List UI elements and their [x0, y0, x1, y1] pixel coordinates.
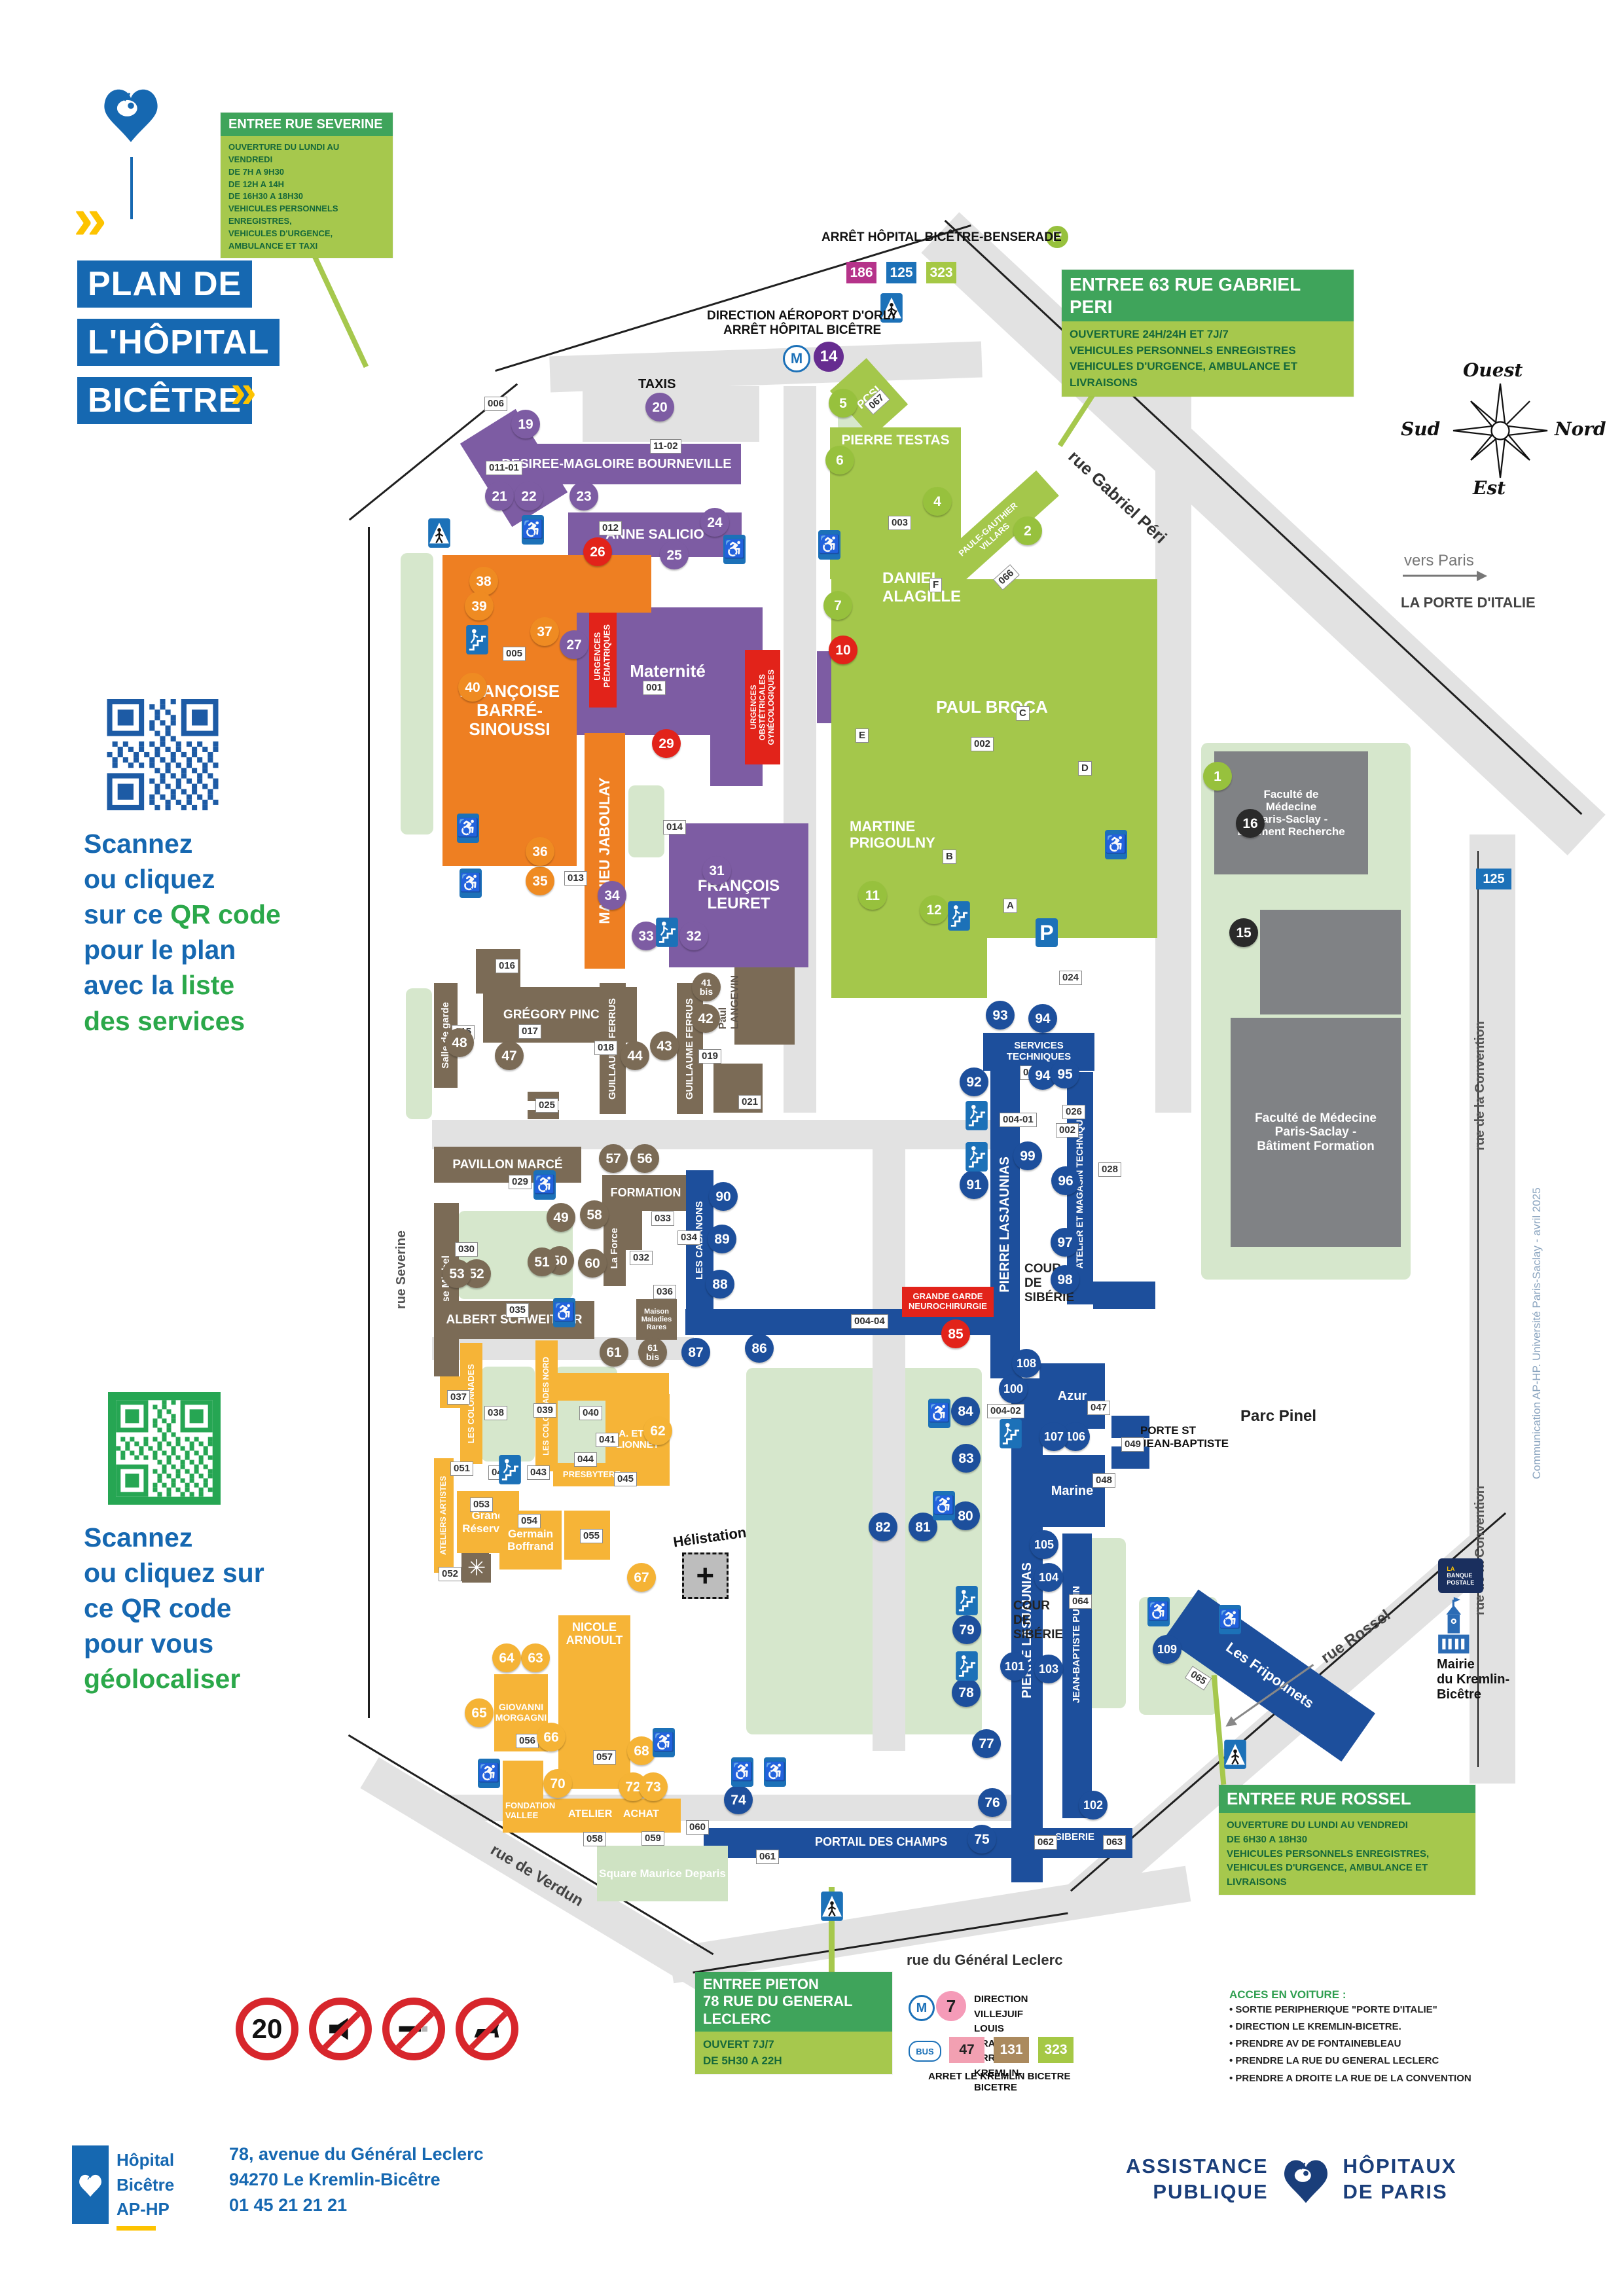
marker-22: 22	[514, 482, 543, 511]
park-area	[406, 988, 432, 1119]
marker-64: 64	[492, 1643, 521, 1672]
code-024: 024	[1059, 971, 1082, 985]
marker-39: 39	[465, 592, 494, 620]
label-taxis: TAXIS	[638, 377, 676, 392]
aphp-wordmark: ASSISTANCE PUBLIQUE HÔPITAUX DE PARIS	[1126, 2148, 1456, 2211]
vers-paris-label: vers Paris	[1404, 552, 1474, 570]
code-e: E	[856, 728, 869, 743]
metro-line7-badge: 7	[936, 1991, 966, 2021]
bus-125-badge-right: 125	[1476, 869, 1511, 889]
building-facult-de-m-decine-paris-saclay-b-timent: Faculté de Médecine Paris-Saclay - Bâtim…	[1214, 751, 1368, 874]
code-006: 006	[484, 397, 507, 411]
marker-86: 86	[745, 1334, 774, 1363]
road	[432, 1120, 995, 1149]
label-mairie-du-kremlin-bic-tre: Mairie du Kremlin- Bicêtre	[1437, 1657, 1509, 1702]
direction-arrow	[1403, 575, 1478, 577]
building-block	[734, 967, 795, 1045]
marker-95: 95	[1051, 1060, 1079, 1088]
code-058: 058	[583, 1832, 606, 1846]
label-parc-pinel: Parc Pinel	[1240, 1407, 1316, 1426]
wheelchair-icon: ♿	[933, 1491, 955, 1520]
marker-100: 100	[999, 1374, 1028, 1403]
code-056: 056	[516, 1734, 539, 1748]
metro-m-icon: M	[783, 345, 810, 372]
wheelchair-icon: ♿	[553, 1298, 575, 1327]
compass-star-icon	[1451, 382, 1549, 480]
marker-11: 11	[858, 881, 887, 910]
marker-76: 76	[978, 1788, 1007, 1817]
marker-47: 47	[495, 1041, 524, 1070]
label-rue-de-la-convention: rue de la Convention	[1473, 1486, 1488, 1619]
wheelchair-icon: ♿	[522, 515, 544, 545]
marker-109: 109	[1153, 1635, 1182, 1664]
footer-hospital-name: Hôpital Bicêtre AP-HP	[117, 2148, 174, 2231]
entrance-box-severine: ENTREE RUE SEVERINEOUVERTURE DU LUNDI AU…	[221, 113, 393, 258]
stairs-icon	[965, 1142, 988, 1175]
wheelchair-icon: ♿	[533, 1170, 556, 1200]
access-item: • SORTIE PERIPHERIQUE "PORTE D'ITALIE"	[1229, 2001, 1596, 2018]
sign-no-dogs	[456, 1998, 518, 2060]
marker-68: 68	[627, 1736, 656, 1765]
building-louise-michel: Louise Michel	[434, 1203, 459, 1376]
marker-43: 43	[650, 1031, 679, 1060]
marker-4: 4	[923, 487, 952, 516]
label-fondation-vallee: FONDATION VALLEE	[505, 1801, 555, 1821]
marker-67: 67	[627, 1563, 656, 1592]
marker-101: 101	[1000, 1652, 1029, 1681]
marker-5: 5	[829, 389, 857, 418]
code-004-02: 004-02	[987, 1404, 1024, 1418]
code-052: 052	[439, 1567, 461, 1581]
bus-stop-benserade-label: ARRÊT HÔPITAL BICÊTRE-BENSERADE	[821, 230, 1062, 245]
parkP-icon: P	[1036, 918, 1058, 947]
marker-60: 60	[578, 1249, 607, 1278]
stairs-icon	[956, 1651, 978, 1684]
marker-57: 57	[599, 1144, 628, 1173]
access-item: • PRENDRE AV DE FONTAINEBLEAU	[1229, 2036, 1596, 2053]
code-064: 064	[1069, 1594, 1092, 1609]
marker-12: 12	[920, 895, 948, 924]
marker-36: 36	[526, 837, 554, 866]
marker-53: 53	[442, 1259, 471, 1288]
footer-h2: Bicêtre	[117, 2173, 174, 2198]
arrow-head-icon	[1223, 1716, 1237, 1731]
marker-61: 61	[600, 1338, 628, 1367]
marker-26: 26	[583, 537, 612, 566]
building-mathieu-jaboulay: MATHIEU JABOULAY	[585, 733, 625, 969]
marker-97: 97	[1051, 1228, 1079, 1257]
sign-no-smoking	[382, 1998, 445, 2060]
building-guillaume-ferrus: GUILLAUME FERRUS	[677, 983, 703, 1114]
building-square-maurice-deparis: Square Maurice Deparis	[597, 1846, 728, 1901]
wheelchair-icon: ♿	[460, 869, 482, 898]
marker-37: 37	[530, 617, 559, 646]
marker-24: 24	[700, 508, 729, 537]
arrow-head-icon	[1477, 571, 1487, 581]
footer-address-line2: 94270 Le Kremlin-Bicêtre	[229, 2167, 484, 2193]
road	[1155, 393, 1191, 1113]
entrance-title-pieton: ENTREE PIETON 78 RUE DU GENERAL LECLERC	[695, 1972, 892, 2032]
marker-93: 93	[986, 1001, 1015, 1030]
entrance-details-gabriel-peri: OUVERTURE 24H/24H ET 7J/7VEHICULES PERSO…	[1062, 321, 1354, 397]
marker-85: 85	[941, 1319, 970, 1348]
aphp-publique: PUBLIQUE	[1126, 2179, 1269, 2205]
code-017: 017	[518, 1024, 541, 1039]
code-039: 039	[533, 1403, 556, 1418]
building-pavillon-marc: PAVILLON MARCÉ	[434, 1147, 581, 1183]
code-057: 057	[593, 1750, 616, 1765]
access-title: ACCES EN VOITURE :	[1229, 1988, 1596, 2001]
marker-77: 77	[972, 1729, 1001, 1758]
marker-62: 62	[643, 1416, 672, 1445]
code-011-01: 011-01	[486, 461, 522, 475]
marker-21: 21	[485, 482, 514, 511]
compass-north: Nord	[1555, 419, 1606, 440]
label-siberie: SIBERIE	[1055, 1831, 1094, 1842]
marker-58: 58	[580, 1200, 609, 1229]
code-044: 044	[574, 1452, 597, 1467]
code-005: 005	[503, 647, 526, 661]
access-by-car: ACCES EN VOITURE : • SORTIE PERIPHERIQUE…	[1229, 1988, 1596, 2087]
wheelchair-icon: ♿	[764, 1757, 786, 1787]
code-013: 013	[564, 871, 587, 886]
bus-badge-131: 131	[994, 2037, 1029, 2063]
code-025: 025	[535, 1098, 558, 1113]
marker-2: 2	[1013, 516, 1042, 545]
aphp-deparis: DE PARIS	[1343, 2179, 1457, 2205]
access-item: • PRENDRE A DROITE LA RUE DE LA CONVENTI…	[1229, 2070, 1596, 2087]
entrance-title-rossel: ENTREE RUE ROSSEL	[1219, 1785, 1475, 1813]
marker-84: 84	[951, 1397, 980, 1426]
code-053: 053	[470, 1498, 493, 1512]
label-martine-prigoulny: MARTINE PRIGOULNY	[850, 818, 935, 852]
marker-49: 49	[547, 1203, 575, 1232]
bus-badge-47: 47	[949, 2037, 984, 2063]
building-la-force: La Force	[604, 1211, 626, 1286]
marker-35: 35	[526, 867, 554, 895]
marker-44: 44	[621, 1041, 649, 1070]
label-h-listation: Hélistation	[672, 1524, 748, 1551]
marker-90: 90	[709, 1182, 738, 1211]
marker-94: 94	[1028, 1004, 1057, 1033]
cross-icon	[428, 518, 450, 551]
marker-31: 31	[702, 856, 731, 885]
code-003: 003	[888, 516, 911, 530]
sun-icon: ✳	[462, 1554, 491, 1583]
stairs-icon	[466, 625, 488, 658]
wheelchair-icon: ♿	[653, 1728, 675, 1757]
label-cour-de-sib-rie: COUR DE SIBÉRIE	[1013, 1599, 1063, 1642]
entrance-details-severine: OUVERTURE DU LUNDI AU VENDREDIDE 7H A 9H…	[221, 136, 393, 258]
code-001: 001	[643, 681, 666, 695]
marker-73: 73	[639, 1772, 668, 1801]
stairs-icon	[956, 1586, 978, 1619]
marker-88: 88	[706, 1270, 734, 1299]
aphp-hopitaux: HÔPITAUX	[1343, 2154, 1457, 2179]
marker-27: 27	[560, 630, 588, 659]
code-11-02: 11-02	[650, 439, 681, 454]
marker-15: 15	[1229, 918, 1258, 947]
access-item: • DIRECTION LE KREMLIN-BICETRE.	[1229, 2018, 1596, 2036]
marker-107: 107	[1039, 1422, 1068, 1451]
footer-address-line3: 01 45 21 21 21	[229, 2193, 484, 2218]
label-paul-broca: PAUL BROCA	[936, 698, 1048, 717]
marker-66: 66	[537, 1723, 566, 1751]
code-048: 048	[1092, 1473, 1115, 1488]
code-036: 036	[653, 1285, 676, 1299]
marker-103: 103	[1034, 1655, 1063, 1683]
marker-87: 87	[681, 1338, 710, 1367]
heli-icon: +	[682, 1552, 729, 1599]
code-045: 045	[614, 1472, 637, 1486]
cross-icon	[821, 1892, 843, 1924]
park-area	[628, 785, 664, 857]
entrance-title-gabriel-peri: ENTREE 63 RUE GABRIEL PERI	[1062, 270, 1354, 321]
label-paul-langevin: Paul LANGEVIN	[717, 975, 742, 1033]
building-urgences-obst-tricales-gyn-cologiques: URGENCES OBSTÉTRICALES GYNÉCOLOGIQUES	[745, 650, 780, 764]
label-achat: ACHAT	[623, 1808, 659, 1820]
marker-61-bis: 61 bis	[638, 1338, 667, 1367]
bus-badge-125: 125	[886, 262, 916, 283]
park-area	[1087, 1538, 1126, 1708]
marker-10: 10	[829, 636, 857, 664]
building-formation: FORMATION	[602, 1175, 689, 1211]
marker-98: 98	[1051, 1265, 1079, 1294]
map-boundary-line	[368, 527, 370, 1718]
footer-h1: Hôpital	[117, 2148, 174, 2173]
wheelchair-icon: ♿	[457, 814, 479, 843]
credit-vertical-label: Communication AP-HP. Université Paris-Sa…	[1530, 903, 1543, 1479]
code-062: 062	[1034, 1835, 1057, 1850]
code-038: 038	[484, 1406, 507, 1420]
wheelchair-icon: ♿	[723, 535, 746, 564]
code-f: F	[929, 578, 942, 592]
code-a: A	[1003, 899, 1017, 913]
wheelchair-icon: ♿	[1147, 1597, 1170, 1626]
marker-29: 29	[652, 729, 681, 758]
stairs-icon	[656, 918, 678, 950]
marker-48: 48	[445, 1028, 474, 1057]
code-049: 049	[1121, 1437, 1144, 1452]
code-004-01: 004-01	[1000, 1113, 1037, 1127]
code-019: 019	[698, 1049, 721, 1064]
marker-34: 34	[598, 881, 626, 910]
building-jean-baptiste-pussin: JEAN-BAPTISTE PUSSIN	[1062, 1534, 1092, 1756]
footer-h3: AP-HP	[117, 2197, 174, 2222]
code-016: 016	[496, 959, 518, 973]
building-block	[831, 936, 987, 998]
metro-m-icon: M	[909, 1995, 935, 2021]
porte-italie-label: LA PORTE D'ITALIE	[1401, 594, 1536, 611]
entrance-box-gabriel-peri: ENTREE 63 RUE GABRIEL PERIOUVERTURE 24H/…	[1062, 270, 1354, 397]
footer-yellow-bar	[117, 2226, 156, 2231]
code-047: 047	[1087, 1401, 1110, 1415]
building-marine: Marine	[1039, 1455, 1105, 1527]
marker-1: 1	[1203, 762, 1232, 791]
access-item: • PRENDRE LA RUE DU GENERAL LECLERC	[1229, 2053, 1596, 2070]
marker-63: 63	[521, 1643, 550, 1672]
park-area	[401, 553, 433, 834]
building-block	[1093, 1282, 1155, 1309]
marker-19: 19	[511, 410, 540, 439]
code-037: 037	[447, 1390, 470, 1405]
code-002: 002	[971, 737, 994, 751]
map-boundary-line	[1477, 851, 1479, 1767]
marker-7: 7	[823, 591, 852, 620]
compass-rose: Ouest Nord Sud Est	[1401, 360, 1597, 504]
marker-80: 80	[951, 1501, 980, 1530]
aphp-assistance: ASSISTANCE	[1126, 2154, 1269, 2179]
marker-104: 104	[1034, 1563, 1063, 1592]
code-014: 014	[663, 820, 686, 834]
mairie-icon	[1438, 1597, 1470, 1658]
building-facult-de-m-decine-paris-saclay-b-timent: Faculté de Médecine Paris-Saclay - Bâtim…	[1231, 1018, 1401, 1247]
entrance-box-rossel: ENTREE RUE ROSSELOUVERTURE DU LUNDI AU V…	[1219, 1785, 1475, 1895]
code-033: 033	[651, 1211, 674, 1226]
building-grande-garde-neurochirurgie: GRANDE GARDE NEUROCHIRURGIE	[902, 1287, 994, 1317]
marker-23: 23	[569, 482, 598, 511]
bus-icon: BUS	[909, 2041, 941, 2062]
metro-line14-badge: 14	[814, 342, 844, 372]
road	[549, 341, 983, 392]
building-block	[503, 1761, 543, 1801]
code-004-04: 004-04	[851, 1314, 888, 1329]
code-018: 018	[594, 1041, 617, 1055]
marker-102: 102	[1079, 1791, 1108, 1820]
cross-icon	[1224, 1740, 1246, 1772]
code-041: 041	[596, 1433, 619, 1447]
code-034: 034	[677, 1230, 700, 1245]
hospital-map-page: » PLAN DE L'HÔPITAL BICÊTRE » Scannezou …	[0, 0, 1624, 2296]
marker-79: 79	[952, 1615, 981, 1644]
footer-address: 78, avenue du Général Leclerc 94270 Le K…	[229, 2142, 484, 2218]
marker-6: 6	[825, 446, 854, 475]
label-rue-de-la-convention: rue de la Convention	[1473, 1021, 1488, 1155]
entrance-details-rossel: OUVERTURE DU LUNDI AU VENDREDIDE 6H30 A …	[1219, 1813, 1475, 1895]
marker-25: 25	[660, 541, 689, 569]
code-030: 030	[455, 1242, 478, 1257]
marker-20: 20	[645, 393, 674, 422]
marker-74: 74	[724, 1785, 753, 1814]
entrance-title-severine: ENTREE RUE SEVERINE	[221, 113, 393, 136]
compass-south: Sud	[1401, 419, 1440, 440]
wheelchair-icon: ♿	[1219, 1605, 1241, 1634]
metro-direction-label: DIRECTION AÉROPORT D'ORLY ARRÊT HÔPITAL …	[707, 309, 897, 338]
code-051: 051	[450, 1462, 473, 1476]
marker-99: 99	[1013, 1141, 1042, 1170]
label-rue-du-g-n-ral-leclerc: rue du Général Leclerc	[907, 1952, 1062, 1968]
code-c: C	[1016, 706, 1030, 721]
building-block	[626, 1211, 642, 1250]
code-002: 002	[1056, 1123, 1079, 1138]
code-012: 012	[599, 521, 622, 535]
marker-70: 70	[543, 1769, 572, 1798]
label-rue-severine: rue Severine	[394, 1230, 409, 1313]
marker-75: 75	[967, 1825, 996, 1854]
marker-65: 65	[465, 1698, 494, 1727]
code-026: 026	[1062, 1105, 1085, 1119]
road	[873, 1129, 905, 1751]
marker-83: 83	[952, 1444, 981, 1473]
code-054: 054	[518, 1514, 541, 1528]
compass-west: Ouest	[1463, 360, 1523, 381]
label-porte-st-jean-baptiste: PORTE ST JEAN-BAPTISTE	[1140, 1424, 1229, 1450]
code-059: 059	[641, 1831, 664, 1846]
building-urgences-p-diatriques: URGENCES PÉDIATRIQUES	[589, 604, 617, 708]
aphp-heart-icon	[1280, 2148, 1331, 2211]
road	[1470, 834, 1515, 1784]
marker-16: 16	[1236, 809, 1265, 838]
wheelchair-icon: ♿	[818, 530, 840, 560]
code-b: B	[943, 850, 956, 864]
code-061: 061	[756, 1850, 779, 1864]
wheelchair-icon: ♿	[731, 1757, 753, 1787]
marker-89: 89	[708, 1225, 736, 1253]
entrance-box-pieton: ENTREE PIETON 78 RUE DU GENERAL LECLERCO…	[695, 1972, 892, 2074]
marker-108: 108	[1012, 1349, 1041, 1378]
sign-20: 20	[236, 1998, 298, 2060]
traffic-signs-row: 20	[236, 1998, 524, 2063]
marker-42: 42	[691, 1004, 720, 1033]
entrance-details-pieton: OUVERT 7J/7DE 5H30 A 22H	[695, 2032, 892, 2074]
bus-badge-323: 323	[926, 262, 956, 283]
label-daniel-alagille: DANIEL ALAGILLE	[882, 569, 961, 605]
code-055: 055	[580, 1529, 603, 1543]
marker-40: 40	[458, 673, 487, 702]
code-043: 043	[527, 1465, 550, 1480]
label-atelier: ATELIER	[568, 1808, 612, 1820]
code-060: 060	[686, 1820, 709, 1835]
building-azur: Azur	[1039, 1363, 1105, 1429]
code-032: 032	[630, 1251, 653, 1265]
marker-82: 82	[869, 1513, 897, 1541]
wheelchair-icon: ♿	[1105, 830, 1127, 859]
footer-logo-square	[72, 2145, 109, 2224]
footer-address-line1: 78, avenue du Général Leclerc	[229, 2142, 484, 2167]
marker-38: 38	[469, 567, 498, 596]
marker-51: 51	[528, 1247, 556, 1276]
wheelchair-icon: ♿	[928, 1399, 950, 1428]
bank-icon: LABANQUEPOSTALE	[1438, 1558, 1483, 1593]
compass-east: Est	[1473, 478, 1506, 499]
bus-badges-top: 186125323	[846, 262, 956, 283]
sign-no-horn	[309, 1998, 372, 2060]
marker-92: 92	[960, 1067, 988, 1096]
marker-56: 56	[630, 1144, 659, 1173]
map-canvas: CPCUDESIREE-MAGLOIRE BOURNEVILLEANNE SAL…	[0, 0, 1624, 2296]
building-block	[576, 555, 651, 613]
code-028: 028	[1098, 1162, 1121, 1177]
marker-96: 96	[1051, 1166, 1080, 1195]
marker-41-bis: 41 bis	[692, 973, 721, 1001]
stairs-icon	[499, 1455, 521, 1488]
stairs-icon	[1000, 1419, 1022, 1452]
stairs-icon	[948, 901, 970, 934]
code-040: 040	[579, 1406, 602, 1420]
label-portail-des-champs: PORTAIL DES CHAMPS	[815, 1835, 947, 1849]
marker-32: 32	[679, 922, 708, 950]
building-desiree-magloire-bourneville: DESIREE-MAGLOIRE BOURNEVILLE	[492, 444, 741, 484]
bus-badge-323: 323	[1038, 2037, 1074, 2063]
building-block	[1260, 910, 1401, 1014]
code-029: 029	[509, 1175, 532, 1189]
marker-105: 105	[1030, 1530, 1058, 1559]
bus-stop-caption: ARRET LE KREMLIN BICETRE	[928, 2071, 1071, 2082]
code-035: 035	[506, 1303, 529, 1318]
code-021: 021	[738, 1095, 761, 1109]
code-063: 063	[1103, 1835, 1126, 1850]
building-maison-maladies-rares: Maison Maladies Rares	[636, 1299, 677, 1340]
